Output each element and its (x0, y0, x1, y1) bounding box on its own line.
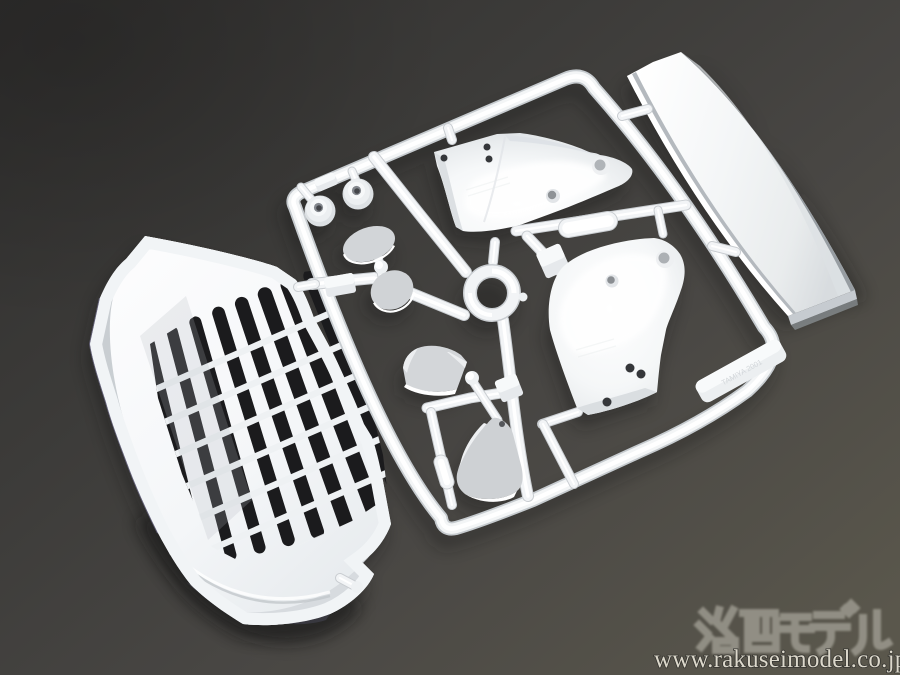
svg-text:www.rakuseimodel.co.jp: www.rakuseimodel.co.jp (654, 646, 900, 673)
